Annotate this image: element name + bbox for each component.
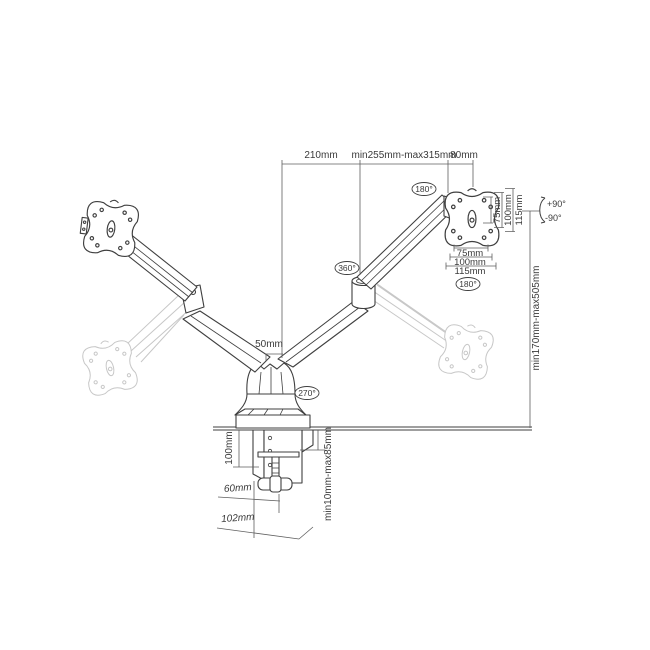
- angle-180-top-label: 180°: [415, 184, 433, 194]
- tilt-down-label: -90°: [545, 213, 562, 223]
- vesa-h-115mm-label: 115mm: [455, 266, 486, 277]
- dim-50mm-label: 50mm: [255, 339, 283, 350]
- product-dimension-diagram: 210mm min255mm-max315mm 80mm 50mm 75mm 1…: [0, 0, 650, 650]
- dim-210mm-label: 210mm: [304, 150, 337, 161]
- right-lower-link-detail: [286, 307, 360, 362]
- angle-badge-180-top: 180°: [412, 183, 436, 196]
- dim-102mm-label: 102mm: [221, 512, 255, 525]
- dim-vesa-horizontal: 75mm 100mm 115mm: [446, 245, 496, 278]
- tilt-up-label: +90°: [547, 199, 566, 209]
- left-vesa-plate: [80, 197, 140, 257]
- left-lower-link-detail: [191, 316, 261, 363]
- right-arm: [278, 195, 456, 367]
- angle-badge-270-base: 270°: [295, 387, 319, 400]
- dim-height-range: min170mm-max505mm: [522, 211, 542, 428]
- dim-height-range-label: min170mm-max505mm: [531, 265, 542, 370]
- dim-60mm-label: 60mm: [224, 482, 252, 495]
- left-plate-hinge-tab: [80, 217, 88, 234]
- ghost-right-arm: [367, 281, 496, 381]
- ghost-left-vesa-plate: [80, 336, 139, 397]
- ghost-right-vesa-plate: [437, 320, 496, 381]
- vesa-v-100mm-label: 100mm: [503, 194, 514, 226]
- vesa-v-75mm-label: 75mm: [492, 197, 503, 223]
- clamp-pad: [258, 452, 299, 457]
- dim-clamp-height-label: 100mm: [224, 431, 235, 464]
- left-arm: [117, 233, 270, 372]
- desk-clamp: [253, 430, 313, 492]
- angle-270-label: 270°: [298, 388, 316, 398]
- diagram-canvas: 210mm min255mm-max315mm 80mm 50mm 75mm 1…: [0, 0, 650, 650]
- vesa-v-115mm-label: 115mm: [514, 194, 525, 225]
- ghost-right-arm-lines: [367, 281, 456, 348]
- tilt-range-annotation: +90° -90°: [540, 197, 567, 223]
- base-top-face: [235, 409, 306, 415]
- base-front: [236, 415, 310, 428]
- angle-badge-180-plate: 180°: [456, 278, 480, 291]
- angle-360-label: 360°: [338, 263, 356, 273]
- dim-80mm-label: 80mm: [450, 150, 478, 161]
- dim-255-315mm-label: min255mm-max315mm: [351, 150, 456, 161]
- clamp-knob-hub: [270, 476, 281, 492]
- clamp-screw-shaft: [272, 457, 279, 478]
- clamp-side-wall: [302, 430, 313, 452]
- left-plate-body: [82, 197, 140, 257]
- angle-180-plate-label: 180°: [459, 279, 477, 289]
- ghost-left-arm-lines: [127, 295, 190, 362]
- right-gas-spring-arm: [357, 195, 456, 289]
- angle-badge-360-swivel: 360°: [335, 262, 359, 275]
- ghost-left-arm: [80, 295, 190, 397]
- dim-desk-thickness-label: min10mm-max85mm: [323, 427, 334, 521]
